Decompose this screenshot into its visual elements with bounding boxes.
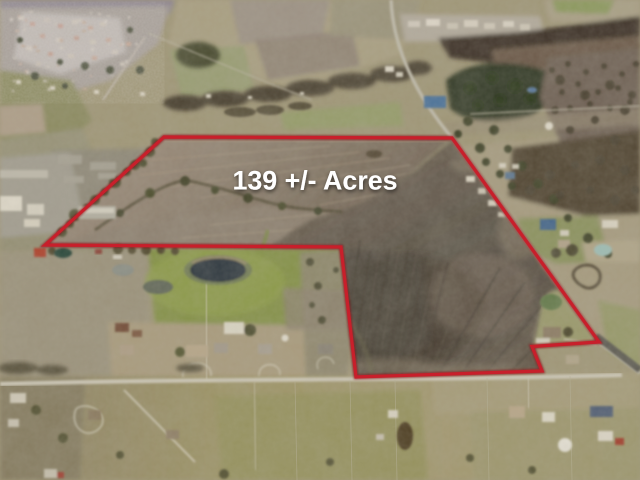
svg-text:139 +/- Acres: 139 +/- Acres bbox=[232, 165, 397, 195]
